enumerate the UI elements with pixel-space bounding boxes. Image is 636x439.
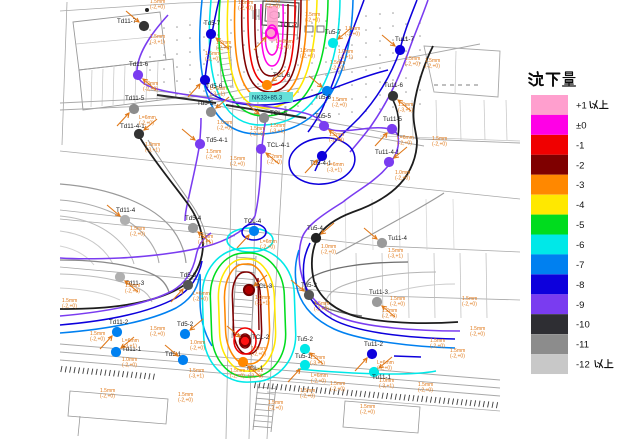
svg-text:(-2,+0): (-2,+0) xyxy=(321,250,336,256)
svg-text:Tu11-4: Tu11-4 xyxy=(388,235,407,242)
svg-text:+1: +1 xyxy=(576,101,587,112)
svg-text:-9: -9 xyxy=(576,300,584,311)
svg-text:-2: -2 xyxy=(576,160,584,171)
svg-text:(-2,+0): (-2,+0) xyxy=(395,176,410,182)
svg-text:(-2,+0): (-2,+0) xyxy=(190,346,205,352)
svg-text:(-2,+0): (-2,+0) xyxy=(300,394,315,400)
svg-text:(-2,+0): (-2,+0) xyxy=(311,379,326,385)
svg-text:(-3,+1): (-3,+1) xyxy=(379,384,394,390)
svg-text:Td11-6: Td11-6 xyxy=(129,61,149,68)
svg-text:(-2,+0): (-2,+0) xyxy=(251,352,266,358)
svg-text:(-3,+1): (-3,+1) xyxy=(150,40,165,46)
svg-text:(-2,+0): (-2,+0) xyxy=(238,6,253,12)
svg-text:Td5-3: Td5-3 xyxy=(180,272,197,279)
svg-text:(-2,+0): (-2,+0) xyxy=(90,337,105,343)
svg-text:Td5-5: Td5-5 xyxy=(197,100,214,107)
svg-text:(-2,+0): (-2,+0) xyxy=(425,64,440,70)
svg-text:(-3,+1): (-3,+1) xyxy=(255,301,270,307)
svg-text:-10: -10 xyxy=(576,320,590,331)
svg-text:NK33+85.3: NK33+85.3 xyxy=(252,96,283,102)
svg-text:-7: -7 xyxy=(576,260,584,271)
svg-text:TCL-4: TCL-4 xyxy=(244,218,262,225)
svg-text:TCL-4-1: TCL-4-1 xyxy=(267,142,290,149)
svg-text:(-2,+0): (-2,+0) xyxy=(230,374,245,380)
svg-text:-1: -1 xyxy=(576,140,584,151)
svg-text:(-2,+0): (-2,+0) xyxy=(62,304,77,310)
svg-text:-8: -8 xyxy=(576,280,584,291)
svg-text:±0: ±0 xyxy=(576,120,587,131)
svg-text:Td5-4-1: Td5-4-1 xyxy=(206,137,228,144)
svg-text:(-3,+1): (-3,+1) xyxy=(327,168,342,174)
svg-text:Tu5-6: Tu5-6 xyxy=(315,94,331,101)
svg-text:(-2,+0): (-2,+0) xyxy=(260,245,275,251)
svg-text:(-2,+0): (-2,+0) xyxy=(390,302,405,308)
svg-text:Tu5-4: Tu5-4 xyxy=(307,225,323,232)
svg-text:(-3,+1): (-3,+1) xyxy=(210,92,225,98)
svg-text:Td5-4: Td5-4 xyxy=(185,215,202,222)
svg-text:(-3,+1): (-3,+1) xyxy=(145,148,160,154)
svg-text:Td11-2: Td11-2 xyxy=(109,319,129,326)
svg-text:(-2,+0): (-2,+0) xyxy=(432,142,447,148)
svg-text:(-2,+0): (-2,+0) xyxy=(462,302,477,308)
svg-text:(-2,+0): (-2,+0) xyxy=(206,155,221,161)
svg-text:(-2,+0): (-2,+0) xyxy=(150,332,165,338)
svg-text:(-2,+0): (-2,+0) xyxy=(430,344,445,350)
svg-text:(-3,+1): (-3,+1) xyxy=(122,344,137,350)
svg-text:Tu11-2: Tu11-2 xyxy=(364,341,383,348)
svg-text:Td5-7: Td5-7 xyxy=(204,20,221,27)
svg-text:-4: -4 xyxy=(576,200,584,211)
svg-text:-5: -5 xyxy=(576,220,584,231)
svg-text:Tu5-7: Tu5-7 xyxy=(325,29,341,36)
svg-text:Td11-7: Td11-7 xyxy=(117,18,137,25)
svg-text:(-2,+0): (-2,+0) xyxy=(276,45,291,51)
svg-text:(-2,+0): (-2,+0) xyxy=(332,103,347,109)
svg-text:(-2,+0): (-2,+0) xyxy=(250,132,265,138)
svg-text:Tu11-5: Tu11-5 xyxy=(383,116,402,123)
svg-text:Tu11-6: Tu11-6 xyxy=(384,82,403,89)
svg-text:(-2,+0): (-2,+0) xyxy=(217,126,232,132)
svg-text:(-2,+0): (-2,+0) xyxy=(230,162,245,168)
svg-text:-3: -3 xyxy=(576,180,584,191)
svg-text:(-2,+0): (-2,+0) xyxy=(300,54,315,60)
svg-text:TCL-3: TCL-3 xyxy=(255,283,273,290)
svg-text:Tu11-4-1: Tu11-4-1 xyxy=(375,149,400,156)
svg-text:Tu5-5: Tu5-5 xyxy=(315,113,331,120)
svg-text:(-2,+0): (-2,+0) xyxy=(450,354,465,360)
svg-text:Tu5-3: Tu5-3 xyxy=(301,282,317,289)
svg-text:Tu5-2: Tu5-2 xyxy=(297,336,313,343)
svg-text:-11: -11 xyxy=(576,340,589,351)
svg-text:(-2,+0): (-2,+0) xyxy=(470,332,485,338)
svg-text:(-2,+0): (-2,+0) xyxy=(405,62,420,68)
svg-text:Tu11-3: Tu11-3 xyxy=(369,289,388,296)
svg-text:(-2,+0): (-2,+0) xyxy=(305,18,320,24)
svg-text:(-3,+1): (-3,+1) xyxy=(388,254,403,260)
svg-text:TCL-2: TCL-2 xyxy=(252,334,270,341)
svg-text:TCL-5: TCL-5 xyxy=(270,110,288,117)
svg-text:(-2,+0): (-2,+0) xyxy=(193,297,208,303)
svg-text:(-2,+0): (-2,+0) xyxy=(345,32,360,38)
svg-text:(-2,+0): (-2,+0) xyxy=(150,5,165,11)
svg-text:(-2,+0): (-2,+0) xyxy=(100,394,115,400)
svg-text:Tu11-7: Tu11-7 xyxy=(395,36,414,43)
svg-text:(-2,+0): (-2,+0) xyxy=(397,141,412,147)
svg-text:(-2,+0): (-2,+0) xyxy=(360,410,375,416)
svg-text:(-3,+1): (-3,+1) xyxy=(189,374,204,380)
svg-text:(-2,+0): (-2,+0) xyxy=(330,66,345,72)
svg-text:(-2,+0): (-2,+0) xyxy=(130,232,145,238)
svg-text:(-2,+0): (-2,+0) xyxy=(314,307,329,313)
svg-text:(-2,+0): (-2,+0) xyxy=(178,398,193,404)
svg-text:-6: -6 xyxy=(576,240,584,251)
svg-text:-12: -12 xyxy=(576,360,590,371)
svg-text:TCL-7: TCL-7 xyxy=(280,22,298,29)
svg-text:(-2,+0): (-2,+0) xyxy=(265,4,280,10)
svg-text:(-2,+0): (-2,+0) xyxy=(122,363,137,369)
svg-text:Td11-5: Td11-5 xyxy=(125,95,145,102)
svg-text:(-2,+0): (-2,+0) xyxy=(418,388,433,394)
svg-text:(-3,+1): (-3,+1) xyxy=(270,129,285,135)
svg-text:(-2,+0): (-2,+0) xyxy=(330,387,345,393)
svg-text:(-2,+0): (-2,+0) xyxy=(268,406,283,412)
svg-text:(-2,+0): (-2,+0) xyxy=(205,57,220,63)
